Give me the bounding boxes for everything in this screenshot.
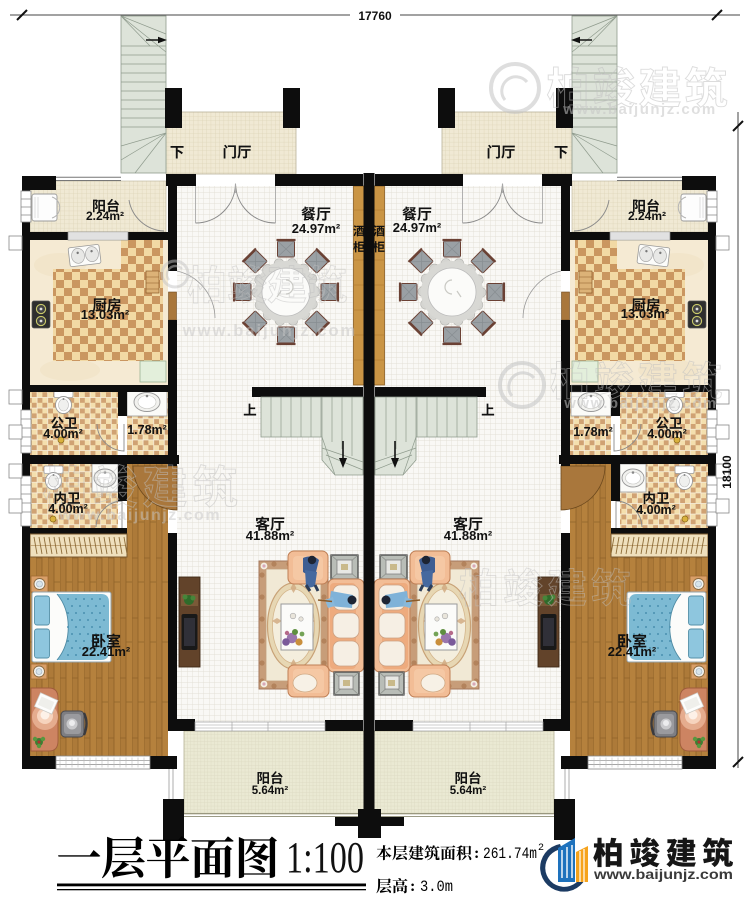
svg-text:17760: 17760 <box>358 9 392 23</box>
svg-text:22.41m²: 22.41m² <box>82 644 131 659</box>
svg-text:5.64m²: 5.64m² <box>252 785 289 797</box>
svg-text:www.baijunjz.com: www.baijunjz.com <box>182 322 357 340</box>
svg-text:4.00m²: 4.00m² <box>647 427 687 441</box>
svg-text:www.baijunjz.com: www.baijunjz.com <box>562 101 716 118</box>
svg-text:1:100: 1:100 <box>286 833 364 882</box>
svg-text:24.97m²: 24.97m² <box>292 221 341 236</box>
svg-text:2.24m²: 2.24m² <box>86 209 124 223</box>
svg-text:1.78m²: 1.78m² <box>573 425 613 439</box>
svg-text:www.baijunjz.com: www.baijunjz.com <box>593 867 733 882</box>
svg-text:13.03m²: 13.03m² <box>621 306 670 321</box>
svg-text:4.00m²: 4.00m² <box>636 503 676 517</box>
svg-text:22.41m²: 22.41m² <box>608 644 657 659</box>
svg-text:www.baijunjz.com: www.baijunjz.com <box>563 395 717 412</box>
svg-text:2: 2 <box>538 843 544 854</box>
svg-text:1.78m²: 1.78m² <box>127 423 167 437</box>
svg-text::: : <box>474 845 479 862</box>
svg-text:24.97m²: 24.97m² <box>393 220 442 235</box>
svg-text:2.24m²: 2.24m² <box>628 209 666 223</box>
svg-text:261.74m: 261.74m <box>483 845 537 863</box>
svg-text:18100: 18100 <box>720 455 734 489</box>
svg-text:3.0m: 3.0m <box>420 878 453 896</box>
svg-text::: : <box>410 878 415 895</box>
svg-text:41.88m²: 41.88m² <box>246 528 295 543</box>
svg-text:4.00m²: 4.00m² <box>43 427 83 441</box>
svg-text:5.64m²: 5.64m² <box>450 785 487 797</box>
svg-text:13.03m²: 13.03m² <box>81 307 130 322</box>
svg-text:4.00m²: 4.00m² <box>48 502 88 516</box>
svg-text:41.88m²: 41.88m² <box>444 528 493 543</box>
